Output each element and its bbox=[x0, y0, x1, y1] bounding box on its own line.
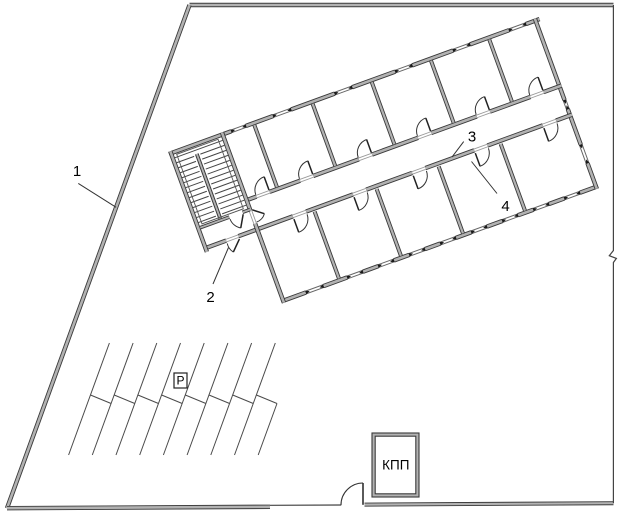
svg-text:2: 2 bbox=[206, 289, 214, 306]
svg-text:3: 3 bbox=[468, 129, 476, 146]
svg-text:4: 4 bbox=[501, 198, 509, 215]
svg-text:P: P bbox=[176, 374, 184, 388]
svg-text:1: 1 bbox=[73, 163, 81, 180]
svg-text:КПП: КПП bbox=[382, 458, 409, 473]
